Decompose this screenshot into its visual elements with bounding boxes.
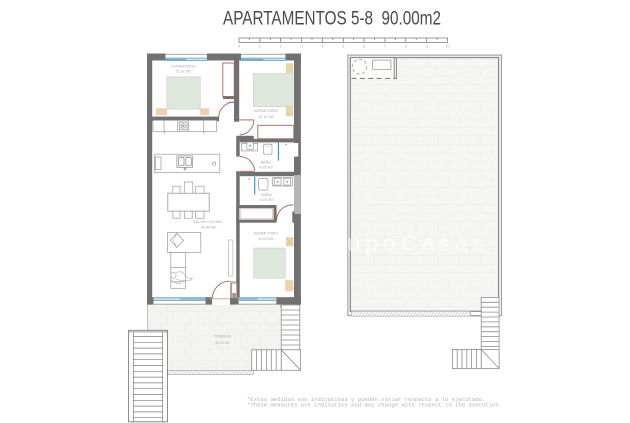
- svg-text:BAÑO: BAÑO: [261, 160, 272, 165]
- svg-text:11.00 M2: 11.00 M2: [258, 237, 274, 241]
- svg-text:DORMITORIO: DORMITORIO: [254, 232, 279, 236]
- svg-text:34.40 M2: 34.40 M2: [201, 225, 217, 229]
- svg-text:9: 9: [426, 43, 428, 48]
- svg-text:*These measures are indicative: *These measures are indicative and may c…: [247, 402, 502, 409]
- svg-text:GrupoCasas: GrupoCasas: [312, 230, 489, 256]
- svg-text:BAÑO: BAÑO: [261, 192, 272, 197]
- svg-text:DORMITORIO: DORMITORIO: [254, 109, 279, 113]
- svg-text:4.05 M2: 4.05 M2: [259, 166, 273, 170]
- svg-text:1: 1: [259, 43, 261, 48]
- svg-text:7: 7: [384, 43, 386, 48]
- svg-text:11.01 M2: 11.01 M2: [215, 341, 229, 345]
- svg-text:6: 6: [363, 43, 365, 48]
- svg-text:11.87 M2: 11.87 M2: [176, 69, 192, 73]
- svg-text:95.09 M2: 95.09 M2: [421, 197, 436, 201]
- svg-text:3: 3: [301, 43, 303, 48]
- svg-text:4.00 M2: 4.00 M2: [260, 198, 274, 202]
- svg-text:2: 2: [280, 43, 282, 48]
- svg-text:8: 8: [405, 43, 407, 48]
- svg-text:5: 5: [342, 43, 344, 48]
- svg-text:APARTAMENTOS 5-8 90.00m2: APARTAMENTOS 5-8 90.00m2: [223, 8, 441, 29]
- svg-text:DORMITORIO: DORMITORIO: [171, 64, 196, 68]
- svg-text:10.12 M2: 10.12 M2: [258, 115, 274, 119]
- svg-text:SALON COCINA: SALON COCINA: [193, 220, 222, 224]
- svg-text:TERRAZA: TERRAZA: [420, 191, 439, 196]
- svg-text:TERRAZA: TERRAZA: [214, 335, 232, 339]
